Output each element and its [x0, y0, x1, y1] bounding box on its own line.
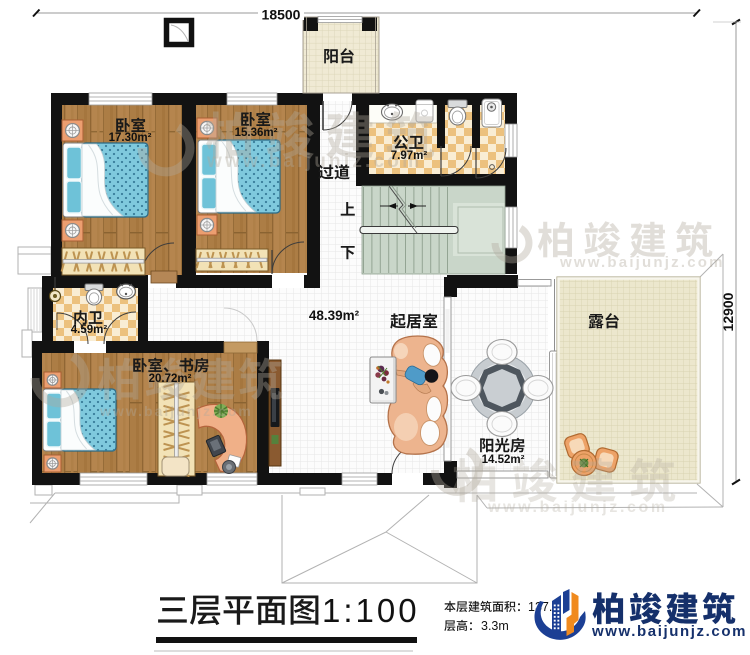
svg-text:3.3m: 3.3m — [481, 619, 509, 633]
svg-text:12900: 12900 — [720, 292, 736, 331]
svg-text:www.baijunjz.com: www.baijunjz.com — [559, 254, 725, 271]
svg-text:14.52m²: 14.52m² — [482, 454, 525, 466]
svg-text:48.39m²: 48.39m² — [309, 308, 360, 323]
svg-text:20.72m²: 20.72m² — [149, 373, 192, 385]
svg-text:15.36m²: 15.36m² — [235, 127, 278, 139]
svg-text:1:100: 1:100 — [322, 592, 420, 629]
svg-text:18500: 18500 — [262, 7, 301, 23]
svg-text:www.baijunjz.com: www.baijunjz.com — [591, 623, 747, 640]
svg-text:www.baijunjz.com: www.baijunjz.com — [206, 151, 422, 172]
svg-text:www.baijunjz.com: www.baijunjz.com — [99, 403, 253, 419]
svg-text:17.30m²: 17.30m² — [109, 132, 152, 144]
svg-text:4.59m²: 4.59m² — [71, 324, 108, 336]
svg-text:www.baijunjz.com: www.baijunjz.com — [487, 499, 668, 516]
svg-text:7.97m²: 7.97m² — [391, 150, 428, 162]
